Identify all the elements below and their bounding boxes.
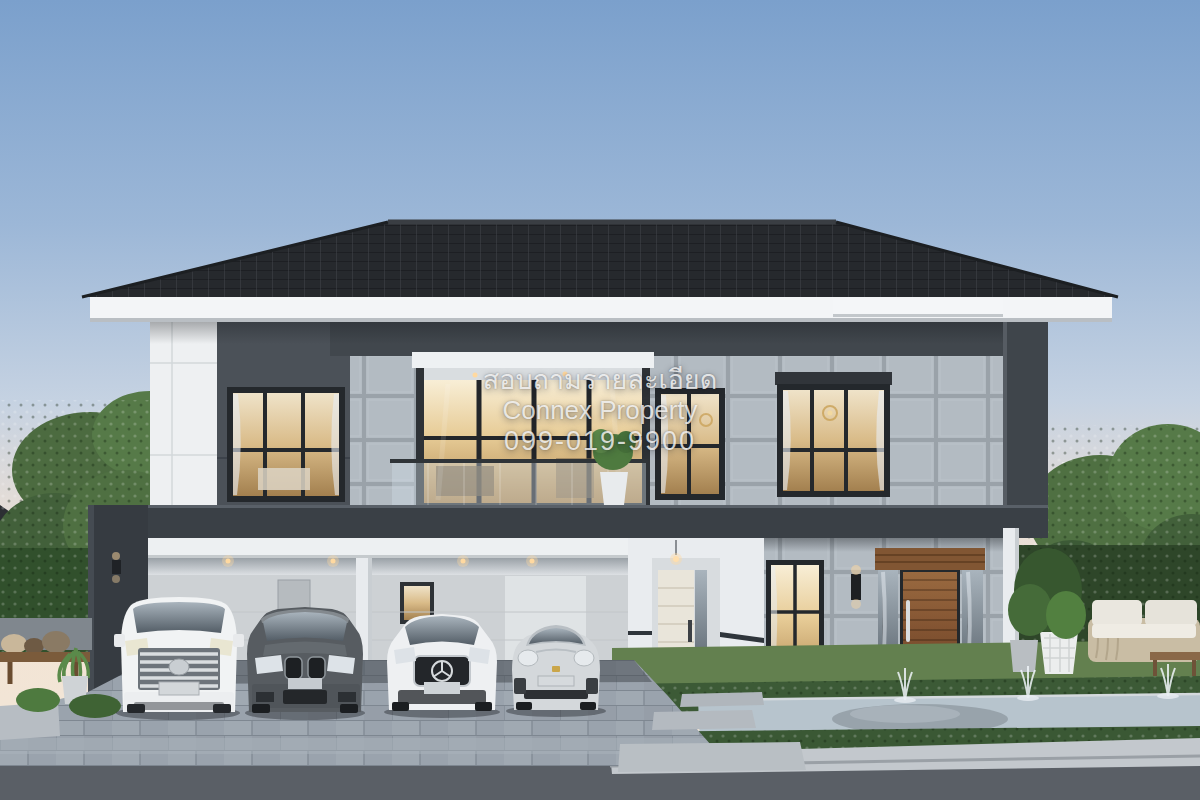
car-white-sedan <box>384 614 500 718</box>
shrub <box>16 688 60 712</box>
scene-canvas <box>0 0 1200 800</box>
headlight <box>518 650 538 666</box>
wheel <box>392 702 409 711</box>
wall-sconce <box>851 574 861 600</box>
bedroom-window-left <box>227 387 345 502</box>
porsche-crest <box>552 666 560 672</box>
wheel <box>127 704 145 713</box>
wheel <box>580 702 596 710</box>
corner-band <box>1003 316 1048 528</box>
bedroom-window-right <box>775 372 892 497</box>
kidney-grille <box>308 657 325 679</box>
bench-pillow <box>42 631 70 653</box>
bench-pillow <box>1 634 27 654</box>
kidney-grille <box>285 657 302 679</box>
windshield <box>133 602 225 633</box>
car-white-van <box>114 597 244 720</box>
rendered-photo: สอบถามรายละเอียด Connex Property 099-019… <box>0 0 1200 800</box>
headlight <box>255 655 283 674</box>
bench-pillow <box>24 638 44 654</box>
roof-accent-ledge <box>833 298 1003 316</box>
wall-sconce <box>112 560 121 574</box>
headlight <box>394 647 416 664</box>
windshield <box>405 616 479 645</box>
headlight <box>468 647 490 664</box>
wheel <box>475 702 492 711</box>
windshield <box>263 612 347 641</box>
planter-pots <box>1008 548 1086 674</box>
coffee-table <box>1150 652 1200 660</box>
shrub <box>69 694 121 718</box>
headlight <box>574 650 594 666</box>
wheel <box>340 704 358 713</box>
floor-band <box>88 505 1048 538</box>
wheel <box>213 704 231 713</box>
wheel <box>252 704 270 713</box>
wheel <box>516 702 532 710</box>
car-gray-suv <box>245 607 365 720</box>
window-center <box>655 388 725 500</box>
white-corner-wall <box>150 318 217 508</box>
headlight <box>327 655 355 674</box>
